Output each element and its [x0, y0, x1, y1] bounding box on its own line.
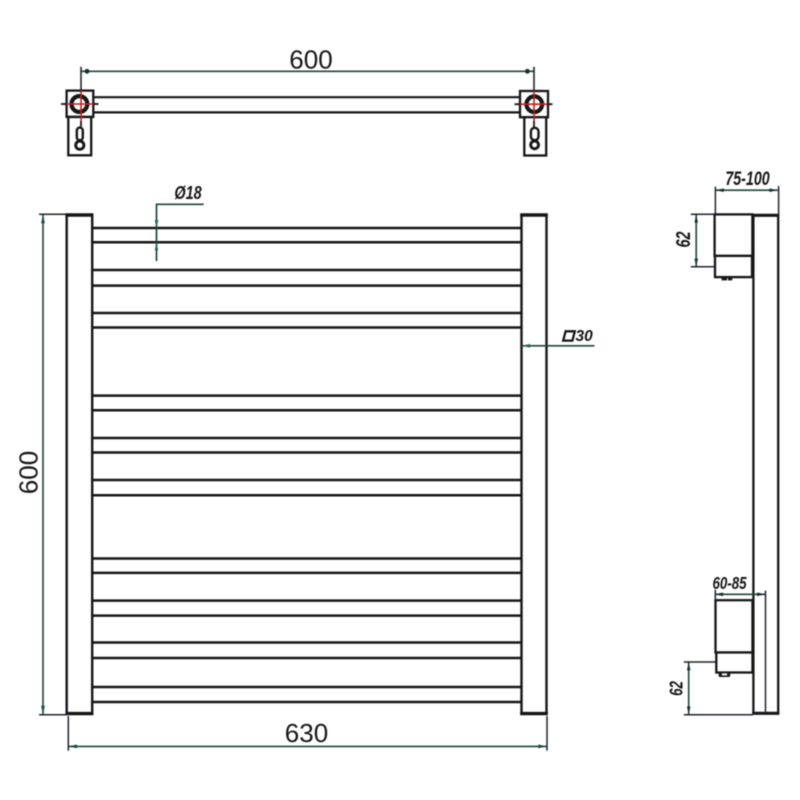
- svg-text:Ø18: Ø18: [174, 182, 202, 203]
- svg-text:62: 62: [671, 231, 694, 247]
- svg-text:30: 30: [576, 328, 594, 345]
- svg-text:600: 600: [13, 451, 43, 494]
- svg-text:60-85: 60-85: [712, 574, 746, 593]
- svg-text:62: 62: [666, 681, 687, 696]
- svg-text:630: 630: [285, 718, 328, 748]
- svg-text:600: 600: [289, 45, 332, 75]
- svg-text:75-100: 75-100: [725, 168, 770, 190]
